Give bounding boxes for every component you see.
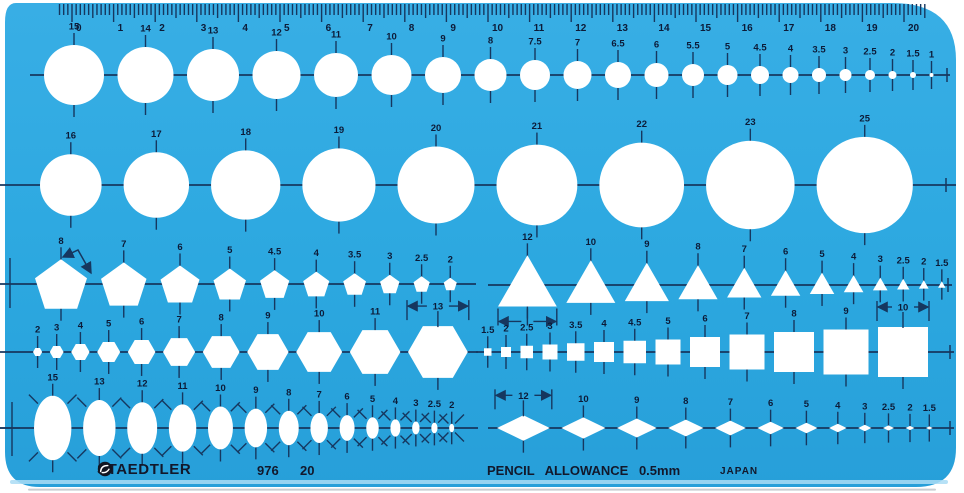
shape-size-label: 25	[859, 113, 870, 124]
ellipse-cutout-10	[208, 407, 233, 450]
shape-size-label: 2	[35, 325, 40, 336]
shape-size-label: 7.5	[528, 37, 542, 48]
shape-size-label: 10	[578, 394, 589, 405]
shape-size-label: 6	[702, 314, 707, 325]
shape-size-label: 1.5	[481, 325, 495, 336]
shape-size-label: 9	[634, 395, 639, 406]
circle-cutout-6.5	[605, 62, 631, 88]
shape-size-label: 4	[393, 396, 399, 407]
circle-cutout-15	[44, 45, 104, 105]
shape-size-label: 11	[331, 30, 342, 41]
shape-size-label: 7	[121, 239, 126, 250]
circle-cutout-7.5	[520, 60, 550, 90]
shape-size-label: 2.5	[520, 322, 534, 333]
shape-size-label: 10	[586, 237, 597, 248]
shape-size-label: 9	[843, 306, 848, 317]
circle-cutout-25	[817, 137, 913, 233]
shape-size-label: 6	[783, 247, 788, 258]
dim-size-label: 13	[433, 302, 444, 313]
shape-size-label: 8	[488, 36, 493, 47]
circle-cutout-14	[118, 47, 174, 103]
circle-cutout-1.5	[910, 72, 916, 78]
ellipse-cutout-15	[34, 396, 71, 461]
shape-size-label: 3.5	[812, 45, 826, 56]
ruler-number: 3	[201, 23, 207, 34]
ellipse-cutout-6	[340, 415, 355, 441]
shape-size-label: 5	[665, 316, 671, 327]
shape-size-label: 7	[742, 244, 747, 255]
square-cutout-2.5	[521, 346, 534, 359]
shape-size-label: 9	[644, 239, 649, 250]
ruler-number: 13	[617, 23, 629, 34]
shape-size-label: 1.5	[923, 403, 937, 414]
square-cutout-4.5	[624, 341, 647, 364]
square-cutout-8	[774, 332, 814, 372]
shape-size-label: 7	[176, 315, 181, 326]
shape-size-label: 3	[843, 46, 848, 57]
shape-size-label: 2	[921, 257, 926, 268]
shape-size-label: 4.5	[628, 317, 642, 328]
ruler-number: 16	[742, 23, 754, 34]
shape-size-label: 6	[768, 398, 773, 409]
shape-size-label: 4.5	[268, 247, 282, 258]
ellipse-cutout-5	[366, 417, 378, 439]
shape-size-label: 3.5	[348, 250, 362, 261]
shape-size-label: 4.5	[753, 43, 767, 54]
shape-size-label: 5	[725, 42, 731, 53]
shape-size-label: 1.5	[906, 49, 920, 60]
ruler-number: 11	[534, 23, 545, 34]
shape-size-label: 23	[745, 117, 756, 128]
circle-cutout-23	[706, 141, 795, 230]
shape-size-label: 6.5	[611, 39, 625, 50]
square-cutout-4	[594, 342, 614, 362]
square-cutout-2	[501, 347, 511, 357]
circle-cutout-19	[302, 148, 375, 221]
shape-size-label: 10	[386, 32, 397, 43]
square-cutout-5	[656, 340, 681, 365]
shape-size-label: 6	[344, 392, 349, 403]
ruler-number: 20	[908, 23, 920, 34]
shape-size-label: 4	[835, 400, 841, 411]
shape-size-label: 8	[58, 236, 63, 247]
circle-cutout-2.5	[865, 70, 875, 80]
shape-size-label: 5	[370, 394, 376, 405]
shape-size-label: 8	[683, 396, 688, 407]
square-cutout-3	[543, 345, 558, 360]
shape-size-label: 2.5	[897, 255, 911, 266]
shape-size-label: 12	[522, 232, 533, 243]
shape-size-label: 18	[240, 127, 251, 138]
circle-cutout-8	[475, 59, 507, 91]
shape-size-label: 5	[106, 319, 112, 330]
template-graphic: 0123456789101112131415161718192015141312…	[0, 0, 964, 493]
circle-cutout-5	[718, 65, 738, 85]
circle-cutout-17	[124, 152, 189, 217]
circle-cutout-20	[398, 147, 475, 224]
circle-cutout-3	[840, 69, 852, 81]
shape-size-label: 9	[440, 34, 445, 45]
shape-size-label: 12	[271, 28, 282, 39]
shape-size-label: 4	[788, 44, 794, 55]
circle-cutout-10	[372, 55, 412, 95]
shape-size-label: 2	[503, 324, 508, 335]
square-cutout-10	[878, 327, 928, 377]
circle-cutout-5.5	[682, 64, 704, 86]
ellipse-cutout-12	[127, 402, 157, 454]
ellipse-cutout-13	[83, 400, 115, 456]
shape-size-label: 22	[636, 119, 647, 130]
ruler-number: 8	[409, 23, 415, 34]
shape-size-label: 2.5	[415, 253, 429, 264]
ruler-number: 1	[118, 23, 124, 34]
square-cutout-1.5	[484, 348, 492, 356]
square-cutout-7	[730, 335, 765, 370]
shape-size-label: 8	[791, 309, 796, 320]
ruler-number: 7	[367, 23, 373, 34]
shape-size-label: 19	[334, 125, 345, 136]
shape-size-label: 7	[317, 389, 322, 400]
ruler-number: 18	[825, 23, 837, 34]
dim-size-label: 10	[898, 303, 909, 314]
shape-size-label: 4	[78, 321, 84, 332]
shape-size-label: 5	[227, 245, 233, 256]
shape-size-label: 3	[878, 254, 883, 265]
shape-size-label: 6	[177, 242, 182, 253]
circle-cutout-1	[930, 73, 934, 77]
shape-size-label: 3.5	[569, 320, 583, 331]
shape-size-label: 13	[208, 26, 219, 37]
circle-cutout-16	[40, 154, 102, 216]
ellipse-cutout-9	[245, 409, 267, 448]
shape-size-label: 9	[265, 311, 270, 322]
shape-size-label: 2.5	[863, 47, 877, 58]
ruler-number: 17	[783, 23, 795, 34]
shape-size-label: 21	[532, 121, 543, 132]
shape-size-label: 17	[151, 129, 162, 140]
shape-size-label: 6	[654, 40, 659, 51]
shape-size-label: 12	[137, 379, 148, 390]
shape-size-label: 11	[370, 307, 381, 318]
square-cutout-9	[824, 330, 869, 375]
circle-cutout-11	[314, 53, 358, 97]
circle-cutout-13	[187, 49, 239, 101]
shape-size-label: 3	[547, 321, 552, 332]
circle-cutout-22	[599, 143, 684, 228]
ruler-number: 19	[866, 23, 878, 34]
square-cutout-3.5	[567, 343, 585, 361]
template-photo: 0123456789101112131415161718192015141312…	[0, 0, 964, 493]
shape-size-label: 3	[54, 323, 59, 334]
shape-size-label: 8	[219, 313, 224, 324]
shape-size-label: 7	[744, 311, 749, 322]
circle-cutout-12	[253, 51, 301, 99]
shape-size-label: 2	[907, 402, 912, 413]
shape-size-label: 10	[314, 309, 325, 320]
ruler-number: 4	[242, 23, 248, 34]
shape-size-label: 20	[431, 123, 442, 134]
shape-size-label: 15	[47, 372, 58, 383]
shape-size-label: 13	[94, 377, 105, 388]
shape-size-label: 5	[804, 399, 810, 410]
circle-cutout-4.5	[751, 66, 769, 84]
shape-size-label: 4	[601, 319, 607, 330]
shape-size-label: 1.5	[935, 258, 949, 269]
shape-size-label: 4	[314, 248, 320, 259]
circle-cutout-3.5	[812, 68, 826, 82]
circle-cutout-6	[645, 63, 669, 87]
circle-cutout-7	[564, 61, 592, 89]
circle-cutout-4	[783, 67, 799, 83]
ellipse-cutout-2.5	[431, 423, 437, 434]
ruler-number: 5	[284, 23, 290, 34]
shape-size-label: 6	[139, 317, 144, 328]
shape-size-label: 8	[286, 387, 291, 398]
bottom-edge-shadow	[28, 489, 936, 491]
bottom-edge-highlight	[10, 480, 948, 484]
ruler-number: 9	[450, 23, 456, 34]
shape-size-label: 7	[728, 397, 733, 408]
shape-size-label: 16	[66, 131, 77, 142]
ruler-number: 10	[492, 23, 504, 34]
shape-size-label: 8	[695, 242, 700, 253]
shape-size-label: 2	[890, 48, 895, 59]
circle-cutout-2	[889, 71, 897, 79]
ruler-number: 14	[658, 23, 670, 34]
ruler-number: 15	[700, 23, 712, 34]
circle-cutout-18	[211, 150, 280, 219]
ellipse-cutout-4	[390, 419, 400, 436]
shape-size-label: 1	[929, 50, 935, 61]
shape-size-label: 11	[178, 381, 189, 392]
ruler-number: 2	[159, 23, 165, 34]
shape-size-label: 5	[819, 249, 825, 260]
shape-size-label: 2	[449, 400, 454, 411]
ellipse-cutout-11	[169, 404, 196, 451]
shape-size-label: 2.5	[882, 402, 896, 413]
shape-size-label: 4	[851, 252, 857, 263]
shape-size-label: 3	[862, 401, 867, 412]
ellipse-cutout-3	[412, 422, 419, 435]
ellipse-cutout-7	[310, 413, 327, 443]
ellipse-cutout-8	[279, 411, 299, 445]
shape-size-label: 3	[387, 251, 392, 262]
shape-size-label: 2	[448, 254, 453, 265]
shape-size-label: 14	[140, 24, 151, 35]
shape-size-label: 3	[413, 398, 418, 409]
ellipse-cutout-2	[449, 424, 454, 433]
shape-size-label: 15	[69, 22, 80, 33]
shape-size-label: 9	[253, 385, 258, 396]
shape-size-label: 7	[575, 38, 580, 49]
shape-size-label: 5.5	[686, 41, 700, 52]
shape-size-label: 10	[215, 383, 226, 394]
ruler-number: 12	[575, 23, 587, 34]
circle-cutout-9	[425, 57, 461, 93]
square-cutout-6	[690, 337, 720, 367]
circle-cutout-21	[497, 145, 578, 226]
shape-size-label: 2.5	[428, 399, 442, 410]
dim-size-label: 12	[518, 391, 529, 402]
